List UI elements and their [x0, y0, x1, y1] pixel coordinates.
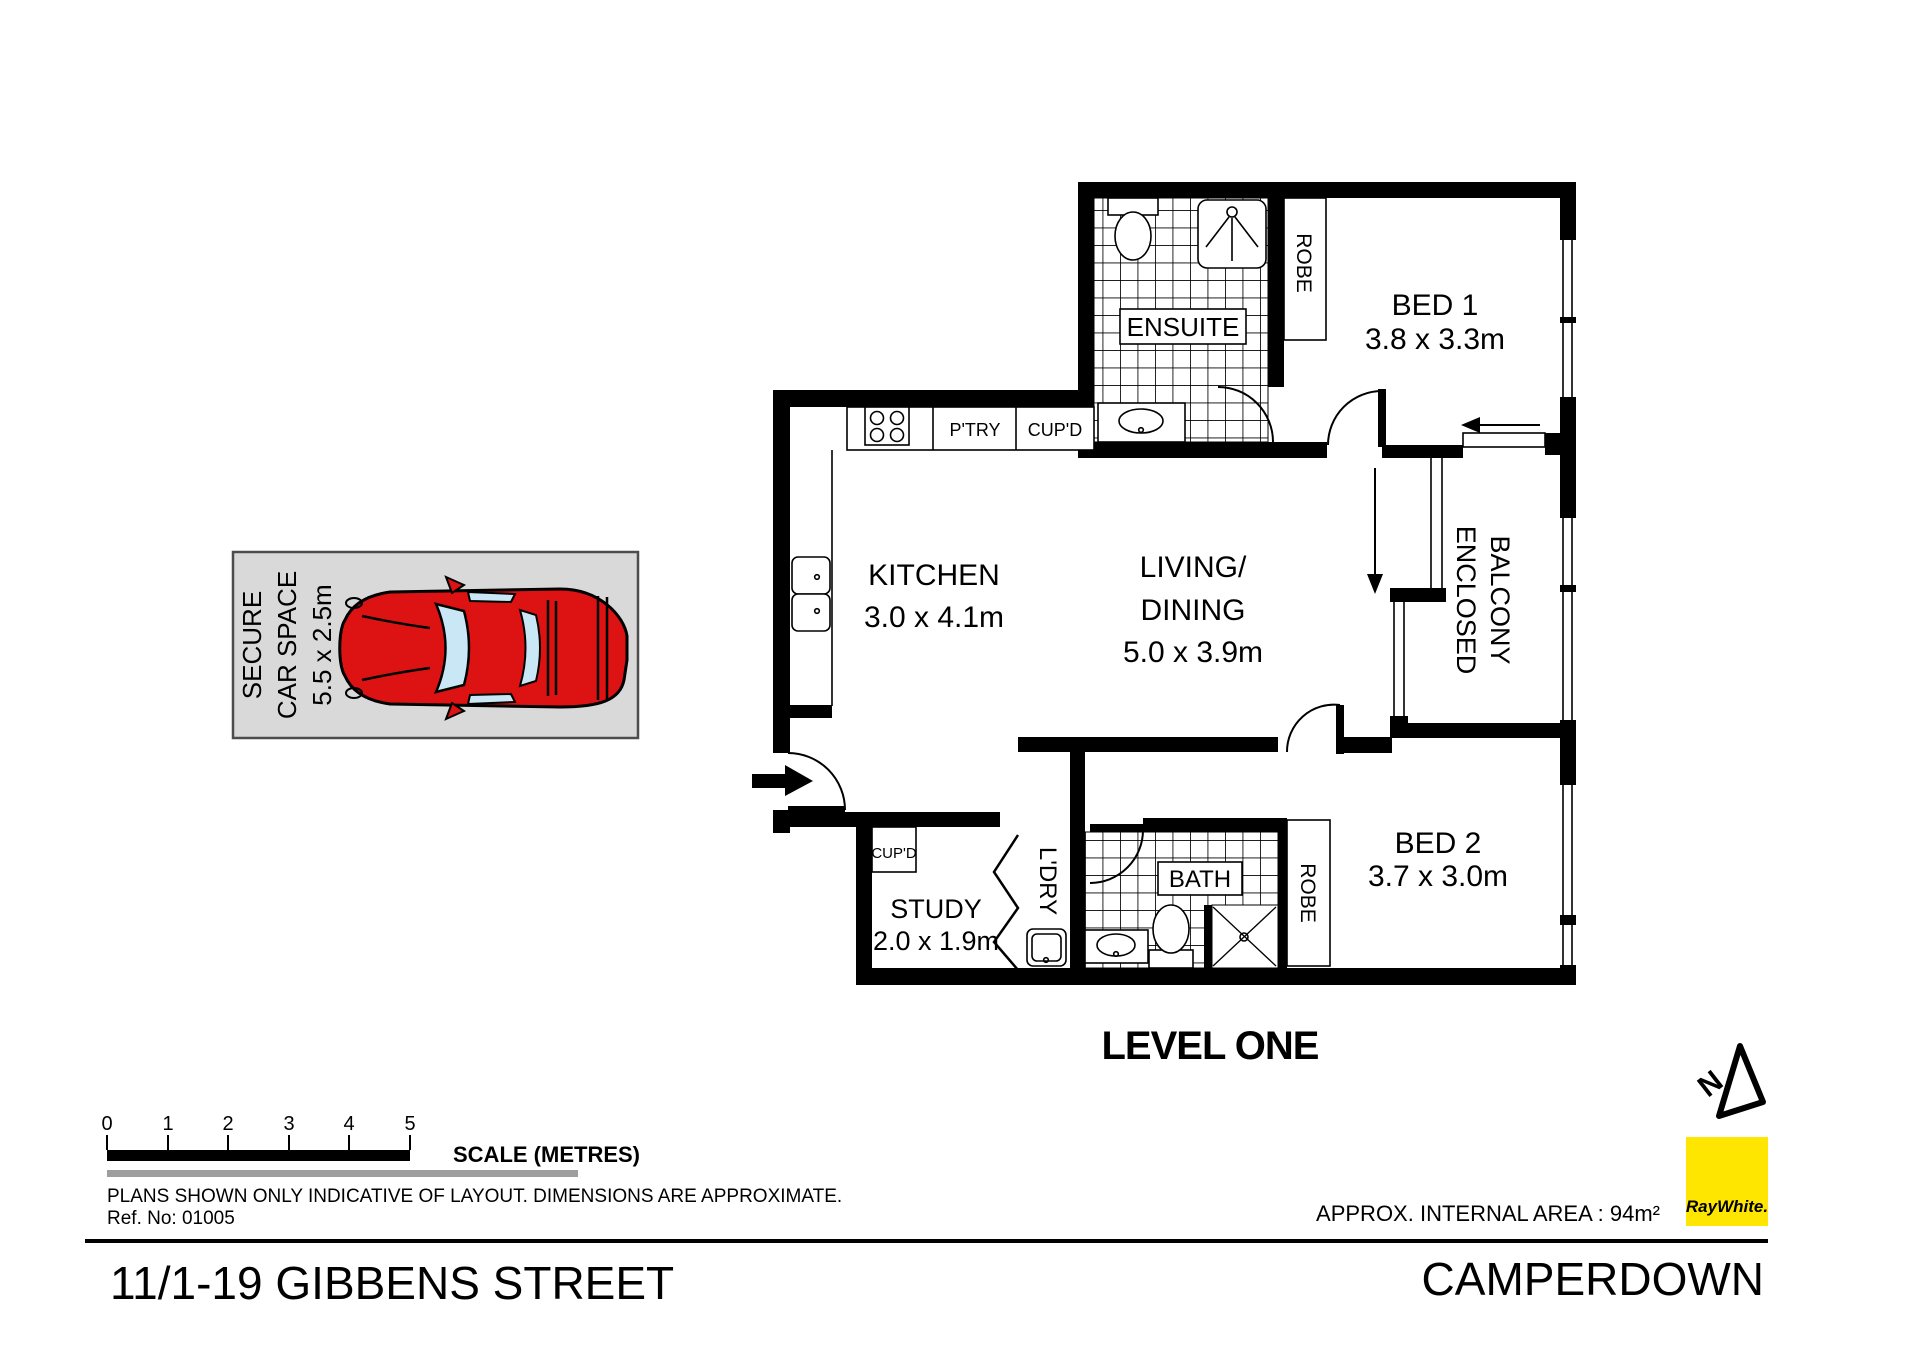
- study-cupboard-label: CUP'D: [871, 845, 917, 862]
- wall-segment: [856, 827, 872, 985]
- living-label-line1: LIVING/: [1140, 551, 1247, 584]
- wall-segment: [773, 390, 1094, 407]
- ensuite-vanity-icon: [1098, 403, 1185, 442]
- floor-plan-page: KITCHEN 3.0 x 4.1m LIVING/ DINING 5.0 x …: [0, 0, 1919, 1357]
- raywhite-logo-text: RayWhite.: [1686, 1197, 1768, 1216]
- ensuite-label: ENSUITE: [1127, 312, 1240, 342]
- kitchen-cupboard-label: CUP'D: [1028, 420, 1082, 440]
- bed1-dims: 3.8 x 3.3m: [1365, 323, 1505, 356]
- window-balcony-left-upper: [1431, 458, 1442, 592]
- car-space-label-line3: 5.5 x 2.5m: [307, 584, 337, 705]
- window-balcony-b: [1560, 592, 1576, 720]
- laundry-label: L'DRY: [1034, 847, 1061, 915]
- bath-shower-icon: [1204, 905, 1278, 968]
- scale-label: SCALE (METRES): [453, 1142, 640, 1167]
- car-space: SECURE CAR SPACE 5.5 x 2.5m: [233, 552, 638, 738]
- wall-segment: [1143, 818, 1278, 832]
- window-bed1-b: [1560, 323, 1576, 397]
- window-bed2-b: [1560, 925, 1576, 965]
- wall-segment: [1278, 818, 1287, 968]
- window-balcony-a: [1560, 518, 1576, 585]
- footer: APPROX. INTERNAL AREA : 94m² 11/1-19 GIB…: [85, 1201, 1768, 1309]
- bed2-door-arc: [1287, 705, 1340, 752]
- wall-segment: [1382, 445, 1463, 458]
- car-top-view-graphic: [340, 577, 627, 719]
- scale-tick-labels: 0 1 2 3 4 5: [101, 1113, 415, 1135]
- scale-bar: 0 1 2 3 4 5 SCALE (METRES) PLANS SHOWN O…: [101, 1113, 842, 1229]
- car-space-label-line1: SECURE: [237, 591, 267, 699]
- ensuite-shower-icon: [1198, 200, 1266, 268]
- scale-gray-underline: [107, 1170, 578, 1177]
- car-body: [340, 589, 627, 707]
- entry-arrow-icon: [752, 765, 813, 796]
- study-dims: 2.0 x 1.9m: [873, 926, 999, 956]
- laundry-fixtures: [1027, 929, 1066, 966]
- bath-door-leaf: [1090, 824, 1143, 832]
- balcony-label-line2: BALCONY: [1485, 535, 1515, 664]
- wall-segment: [856, 968, 1576, 985]
- bed2-label: BED 2: [1395, 827, 1482, 860]
- north-arrow-icon: N: [1692, 1046, 1763, 1116]
- scale-tick-4: 4: [343, 1113, 354, 1135]
- wall-segment: [1390, 588, 1446, 602]
- wall-segment: [1078, 182, 1576, 198]
- balcony-label-line1: ENCLOSED: [1451, 526, 1481, 675]
- car-space-label-line2: CAR SPACE: [272, 571, 302, 719]
- address-text: 11/1-19 GIBBENS STREET: [110, 1257, 674, 1309]
- scale-tick-1: 1: [162, 1113, 173, 1135]
- bed2-dims: 3.7 x 3.0m: [1368, 860, 1508, 893]
- raywhite-logo: RayWhite.: [1686, 1137, 1768, 1226]
- bath-label: BATH: [1169, 866, 1231, 893]
- bed2-robe-label: ROBE: [1296, 863, 1319, 923]
- bath-vanity-icon: [1085, 930, 1148, 963]
- car-window-top: [468, 592, 515, 602]
- balcony-sliding-door: [1461, 417, 1545, 447]
- wall-segment: [773, 390, 790, 753]
- bed1-label: BED 1: [1392, 289, 1479, 322]
- wall-segment: [1018, 737, 1278, 752]
- floor-plan-canvas: KITCHEN 3.0 x 4.1m LIVING/ DINING 5.0 x …: [0, 0, 1919, 1357]
- wall-segment: [1390, 723, 1576, 738]
- scale-tick-5: 5: [404, 1113, 415, 1135]
- wall-segment: [1268, 198, 1284, 387]
- living-label-line2: DINING: [1141, 594, 1246, 627]
- window-balcony-left-lower: [1394, 600, 1404, 723]
- scale-ticks: [107, 1135, 410, 1150]
- kitchen-counter-return: [790, 705, 832, 718]
- scale-tick-0: 0: [101, 1113, 112, 1135]
- slide-arrow-left-icon: [1461, 417, 1480, 433]
- bed1-door-arc: [1328, 391, 1382, 445]
- living-dims: 5.0 x 3.9m: [1123, 636, 1263, 669]
- suburb-text: CAMPERDOWN: [1422, 1253, 1764, 1305]
- internal-area-text: APPROX. INTERNAL AREA : 94m²: [1316, 1201, 1660, 1226]
- window-bed1-a: [1560, 240, 1576, 317]
- kitchen-sink-icon: [792, 557, 830, 631]
- study-label: STUDY: [890, 894, 982, 924]
- window-bed2-a: [1560, 785, 1576, 915]
- car-window-bottom: [468, 694, 515, 704]
- scale-tick-2: 2: [222, 1113, 233, 1135]
- scale-tick-3: 3: [283, 1113, 294, 1135]
- living-balcony-slide-arrow-icon: [1367, 468, 1383, 594]
- laundry-tub-icon: [1027, 929, 1066, 966]
- stove-cooktop-icon: [865, 407, 909, 445]
- wall-segment: [1070, 752, 1085, 970]
- bed2-door-leaf: [1336, 705, 1344, 754]
- bed1-robe-label: ROBE: [1292, 233, 1315, 293]
- ref-no-text: Ref. No: 01005: [107, 1208, 235, 1229]
- entry-door-leaf: [788, 806, 845, 818]
- scale-bar-black: [107, 1150, 410, 1161]
- kitchen-label: KITCHEN: [868, 559, 1000, 592]
- wall-segment: [1094, 442, 1327, 458]
- disclaimer-text: PLANS SHOWN ONLY INDICATIVE OF LAYOUT. D…: [107, 1186, 842, 1207]
- pantry-label: P'TRY: [949, 420, 1000, 440]
- kitchen-dims: 3.0 x 4.1m: [864, 601, 1004, 634]
- wall-segment: [1340, 737, 1392, 753]
- bed1-door-leaf: [1378, 389, 1386, 447]
- level-label: LEVEL ONE: [1102, 1024, 1319, 1068]
